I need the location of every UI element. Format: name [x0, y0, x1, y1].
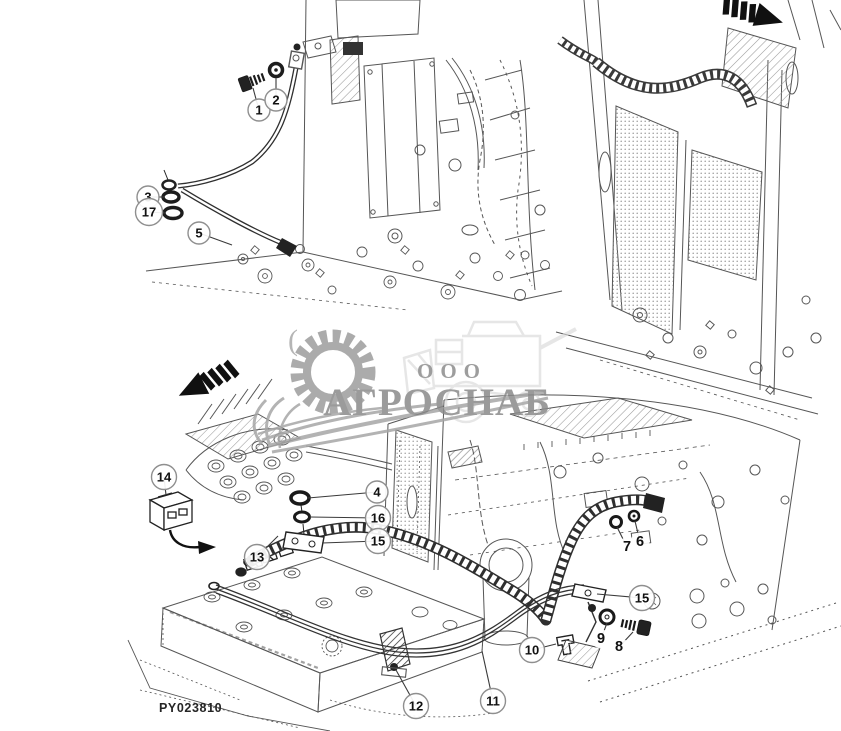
svg-text:9: 9 [597, 631, 605, 647]
watermark-company-name: АГРОСНАБ [323, 381, 551, 424]
callout-6: 6 [631, 521, 650, 552]
top-view-line-art [146, 0, 841, 420]
diagram-canvas: ( ООО АГРОСНАБ PY023810 1231751441615137… [0, 0, 841, 731]
svg-text:1: 1 [255, 103, 262, 118]
callout-11: 11 [481, 651, 506, 714]
svg-text:12: 12 [409, 699, 423, 714]
direction-arrow-mid-left [173, 356, 241, 406]
watermark-artifact: ( [288, 324, 298, 357]
svg-text:6: 6 [636, 534, 644, 550]
callout-10: 10 [520, 638, 557, 663]
svg-text:7: 7 [623, 539, 631, 555]
bottom-view-line-art [128, 379, 841, 731]
svg-text:10: 10 [525, 643, 539, 658]
callout-5: 5 [188, 222, 232, 245]
svg-text:11: 11 [486, 694, 500, 709]
callout-14: 14 [152, 465, 177, 496]
svg-text:2: 2 [272, 93, 279, 108]
callout-8: 8 [610, 632, 634, 657]
svg-text:17: 17 [142, 205, 156, 220]
svg-text:16: 16 [371, 511, 385, 526]
svg-text:14: 14 [157, 470, 172, 485]
parts-diagram-page: ( ООО АГРОСНАБ PY023810 1231751441615137… [0, 0, 841, 731]
callout-4: 4 [308, 481, 388, 503]
callout-2: 2 [265, 78, 287, 111]
agrosnab-watermark: ( ООО АГРОСНАБ [254, 322, 576, 452]
drawing-number: PY023810 [159, 701, 222, 715]
svg-text:5: 5 [195, 226, 202, 241]
svg-text:15: 15 [635, 591, 649, 606]
svg-text:13: 13 [250, 550, 264, 565]
svg-text:4: 4 [373, 485, 381, 500]
svg-text:8: 8 [615, 639, 623, 655]
callout-17: 17 [136, 199, 166, 226]
watermark-company-prefix: ООО [417, 359, 487, 383]
svg-text:15: 15 [371, 534, 385, 549]
